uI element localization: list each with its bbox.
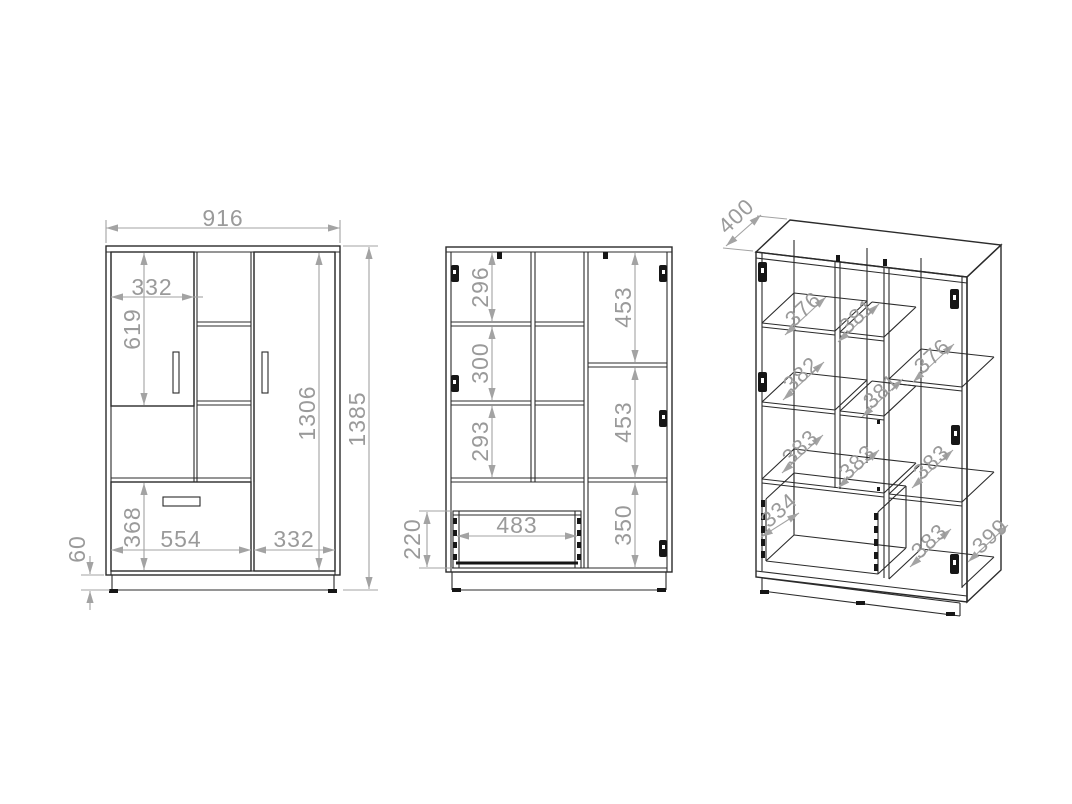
dim-perspective-right-shelf-top: 376 bbox=[909, 333, 955, 378]
drawing-canvas: 916 332 619 1306 1385 368 554 332 60 bbox=[0, 0, 1072, 804]
dim-perspective-drawer-depth: 334 bbox=[756, 488, 802, 533]
dim-interior-drawer-width: 483 bbox=[496, 512, 537, 538]
dim-front-drawer-width: 554 bbox=[160, 526, 201, 552]
technical-drawing: 916 332 619 1306 1385 368 554 332 60 bbox=[0, 0, 1072, 804]
dim-front-right-door-height: 1306 bbox=[294, 385, 320, 440]
front-right-door-handle bbox=[262, 352, 268, 393]
interior-middle-shelves bbox=[535, 322, 584, 405]
front-middle-shelves bbox=[197, 322, 251, 405]
dim-perspective-right-shelf-middle: 383 bbox=[908, 439, 954, 484]
dim-interior-right-bottom: 350 bbox=[610, 504, 636, 545]
dim-front-left-door-height: 619 bbox=[119, 308, 145, 349]
perspective-cabinet-structure bbox=[756, 220, 1001, 616]
dim-interior-right-top: 453 bbox=[610, 286, 636, 327]
dim-perspective-left-shelf-middle: 382 bbox=[778, 351, 824, 396]
dim-perspective-middle-shelf-bottom: 383 bbox=[834, 439, 880, 484]
perspective-view: 400 376 382 383 381 381 383 376 383 383 … bbox=[713, 193, 1013, 616]
front-foot-right bbox=[328, 589, 337, 593]
dim-perspective-left-shelf-bottom: 383 bbox=[777, 424, 823, 469]
interior-dimensions: 296 300 293 453 453 350 483 220 bbox=[399, 253, 636, 568]
dim-front-drawer-height: 368 bbox=[119, 506, 145, 547]
front-partitions bbox=[194, 252, 254, 482]
dim-interior-right-middle: 453 bbox=[610, 401, 636, 442]
dim-perspective-middle-shelf-middle: 381 bbox=[858, 368, 904, 413]
dim-perspective-left-shelf-top: 376 bbox=[780, 286, 826, 331]
front-left-door-handle bbox=[173, 352, 179, 393]
perspective-top-face bbox=[756, 220, 1001, 277]
dim-interior-left-middle: 300 bbox=[467, 342, 493, 383]
interior-drawer-top-shelf bbox=[451, 478, 584, 482]
dim-front-total-height: 1385 bbox=[344, 391, 370, 446]
dim-interior-left-bottom: 293 bbox=[467, 420, 493, 461]
dim-front-right-door-width: 332 bbox=[273, 526, 314, 552]
dim-perspective-total-depth: 400 bbox=[713, 193, 759, 238]
front-drawer-handle bbox=[163, 497, 200, 506]
front-view: 916 332 619 1306 1385 368 554 332 60 bbox=[64, 205, 378, 610]
dim-front-left-door-width: 332 bbox=[131, 274, 172, 300]
dim-interior-drawer-height: 220 bbox=[399, 518, 425, 559]
dim-perspective-base-depth: 399 bbox=[967, 513, 1013, 558]
dim-interior-left-top: 296 bbox=[467, 266, 493, 307]
front-foot-left bbox=[109, 589, 118, 593]
dim-front-total-width: 916 bbox=[202, 205, 243, 231]
interior-view: 296 300 293 453 453 350 483 220 bbox=[399, 247, 672, 592]
dim-front-plinth-height: 60 bbox=[64, 535, 90, 563]
